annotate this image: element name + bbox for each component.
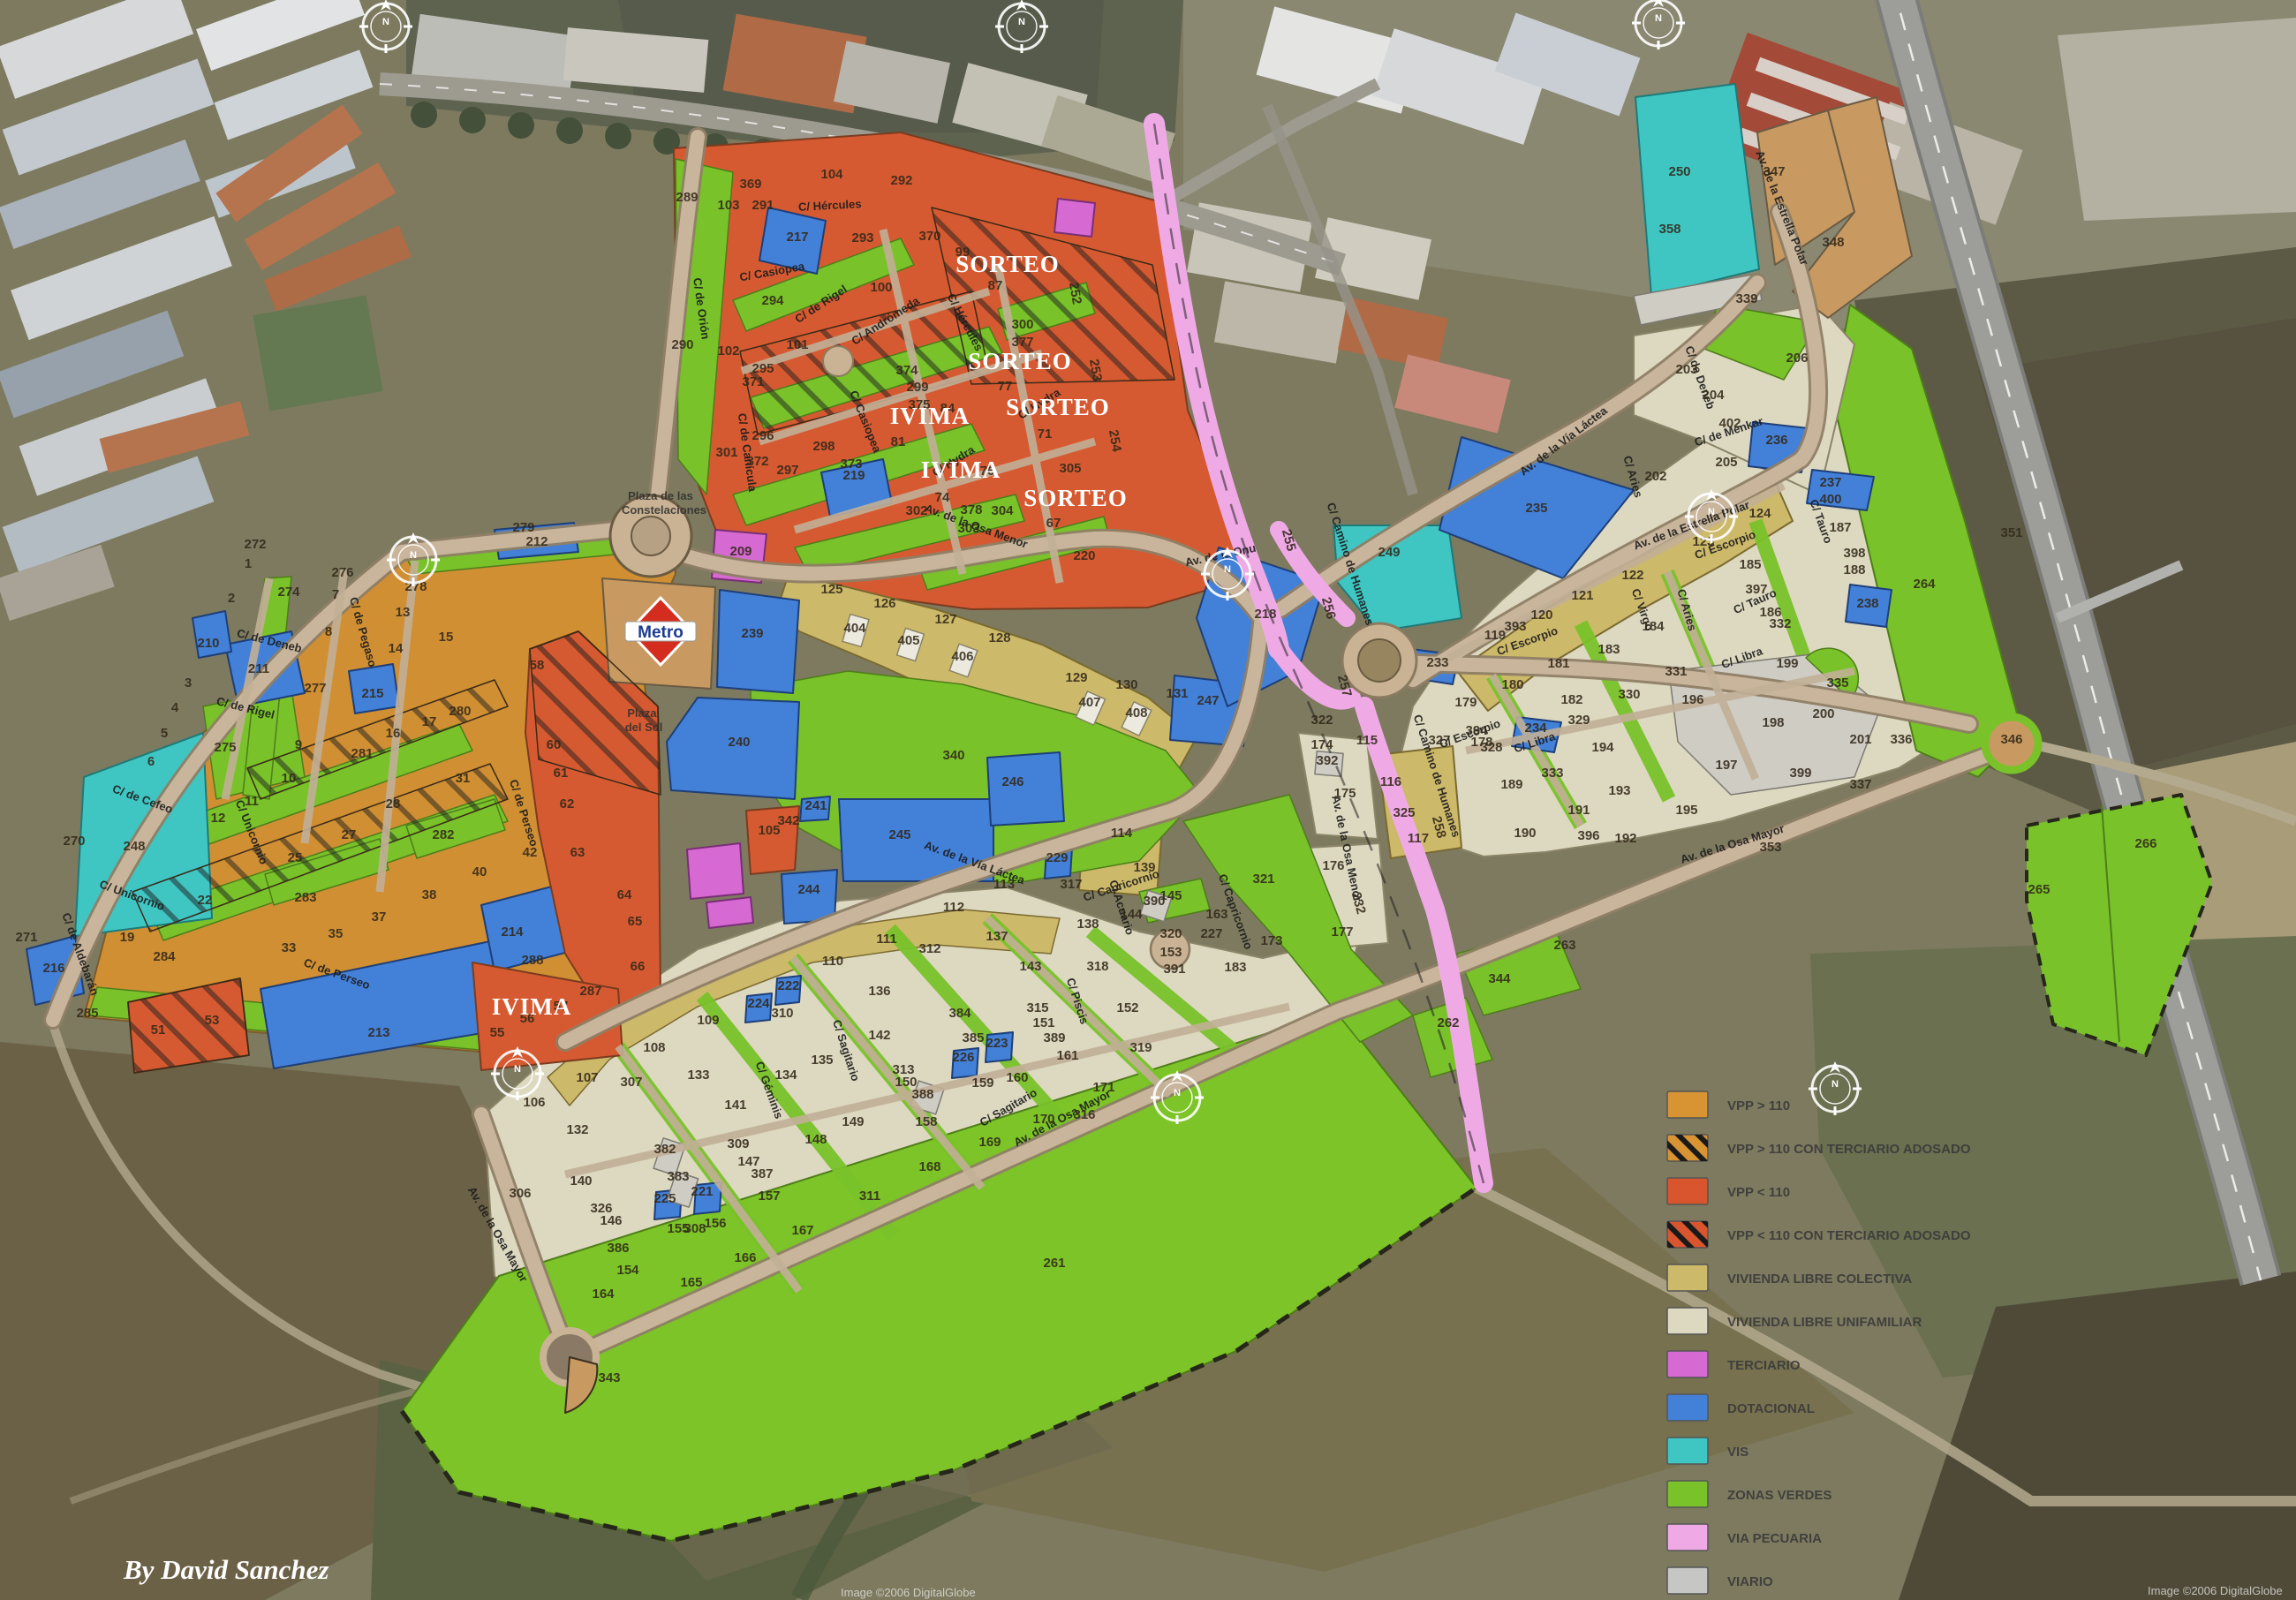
parcel-label: 66 xyxy=(631,959,646,974)
legend-swatch xyxy=(1667,1264,1708,1291)
parcel-label: 81 xyxy=(891,434,906,449)
parcel-label: 165 xyxy=(680,1275,702,1290)
parcel-label: 33 xyxy=(282,940,297,955)
parcel-label: 125 xyxy=(820,582,842,597)
parcel-label: 163 xyxy=(1205,907,1227,922)
parcel-label: 6 xyxy=(147,754,155,769)
parcel-label: 183 xyxy=(1224,960,1246,975)
parcel-label: 8 xyxy=(325,624,332,639)
parcel-label: 262 xyxy=(1437,1015,1459,1030)
parcel-label: 127 xyxy=(934,612,956,627)
parcel-label: 137 xyxy=(986,929,1008,944)
parcel-label: 226 xyxy=(952,1050,974,1065)
parcela-terciario-208 xyxy=(706,897,753,928)
tree-canopy xyxy=(459,107,486,133)
parcel-label: 329 xyxy=(1567,713,1590,728)
district-label: IVIMA xyxy=(921,457,1001,483)
parcel-label: 103 xyxy=(717,198,739,213)
parcel-label: 164 xyxy=(592,1287,615,1302)
parcel-label: 335 xyxy=(1826,675,1848,691)
district-label: IVIMA xyxy=(492,993,572,1020)
parcel-label: 135 xyxy=(811,1053,833,1068)
parcel-label: 275 xyxy=(214,740,236,755)
parcel-label: 102 xyxy=(717,343,739,358)
parcel-label: 239 xyxy=(741,626,763,641)
district-label: SORTEO xyxy=(968,348,1072,374)
parcel-label: 159 xyxy=(971,1075,993,1091)
parcel-label: 182 xyxy=(1560,692,1582,707)
parcel-label: 245 xyxy=(888,827,910,842)
parcel-label: 280 xyxy=(449,704,471,719)
parcel-label: 201 xyxy=(1849,732,1871,747)
parcel-label: 184 xyxy=(1642,619,1665,634)
legend-label: VPP < 110 CON TERCIARIO ADOSADO xyxy=(1727,1228,1971,1243)
parcel-label: 407 xyxy=(1078,695,1100,710)
parcel-label: 126 xyxy=(873,596,895,611)
parcel-label: 61 xyxy=(554,766,569,781)
parcel-label: 371 xyxy=(742,374,764,389)
parcel-label: 277 xyxy=(304,681,326,696)
legend-label: TERCIARIO xyxy=(1727,1358,1801,1373)
parcel-label: 331 xyxy=(1665,664,1687,679)
parcel-label: 106 xyxy=(523,1095,545,1110)
legend-swatch xyxy=(1667,1524,1708,1551)
legend-swatch xyxy=(1667,1567,1708,1594)
legend-label: VPP > 110 CON TERCIARIO ADOSADO xyxy=(1727,1142,1971,1157)
parcel-label: 142 xyxy=(868,1028,890,1043)
parcel-label: 235 xyxy=(1525,501,1547,516)
parcel-label: 308 xyxy=(684,1221,706,1236)
parcel-label: 310 xyxy=(771,1006,793,1021)
parcel-label: 191 xyxy=(1567,803,1590,818)
parcel-label: 387 xyxy=(751,1166,773,1181)
tree-canopy xyxy=(556,117,583,144)
plaza-label: del Sol xyxy=(625,721,663,734)
parcel-label: 173 xyxy=(1260,933,1282,948)
parcel-label: 144 xyxy=(1120,907,1143,922)
parcel-label: 244 xyxy=(797,882,820,897)
parcel-label: 288 xyxy=(521,953,543,968)
parcel-label: 343 xyxy=(598,1370,620,1385)
parcel-label: 348 xyxy=(1822,235,1844,250)
parcel-label: 404 xyxy=(843,621,866,636)
parcel-label: 193 xyxy=(1608,783,1630,798)
parcel-label: 104 xyxy=(820,167,843,182)
parcel-label: 266 xyxy=(2134,836,2156,851)
parcel-label: 12 xyxy=(211,811,226,826)
parcel-label: 171 xyxy=(1092,1080,1114,1095)
parcel-label: 77 xyxy=(998,379,1013,394)
parcel-label: 42 xyxy=(523,845,538,860)
parcel-label: 236 xyxy=(1765,433,1787,448)
parcel-label: 141 xyxy=(724,1098,746,1113)
parcel-label: 353 xyxy=(1759,840,1781,855)
parcel-label: 3 xyxy=(185,675,192,691)
parcel-label: 372 xyxy=(746,454,768,469)
parcel-label: 115 xyxy=(1356,733,1378,748)
parcel-label: 222 xyxy=(777,978,799,993)
parcel-label: 290 xyxy=(671,337,693,352)
parcel-label: 15 xyxy=(439,630,454,645)
parcel-label: 11 xyxy=(245,794,259,809)
parcel-label: 174 xyxy=(1310,737,1333,752)
parcel-label: 206 xyxy=(1786,351,1808,366)
parcel-label: 304 xyxy=(991,503,1014,518)
parcel-label: 405 xyxy=(897,633,919,648)
parcel-label: 298 xyxy=(812,439,835,454)
parcel-label: 112 xyxy=(943,900,964,915)
parcel-label: 130 xyxy=(1115,677,1137,692)
parcel-label: 64 xyxy=(617,887,632,902)
parcel-label: 265 xyxy=(2028,882,2050,897)
parcel-label: 391 xyxy=(1163,962,1185,977)
legend-swatch-hatch xyxy=(1667,1221,1708,1248)
parcel-label: 282 xyxy=(432,827,454,842)
parcel-label: 279 xyxy=(512,520,534,535)
parcel-label: 205 xyxy=(1715,455,1737,470)
parcel-label: 397 xyxy=(1745,582,1767,597)
legend-swatch-hatch xyxy=(1667,1135,1708,1161)
plaza-label: Plaza xyxy=(627,706,657,720)
parcel-label: 283 xyxy=(294,890,316,905)
parcel-label: 240 xyxy=(728,735,750,750)
parcel-label: 62 xyxy=(560,796,575,811)
parcel-label: 337 xyxy=(1849,777,1871,792)
parcel-label: 169 xyxy=(978,1135,1001,1150)
parcel-label: 129 xyxy=(1065,670,1087,685)
parcel-label: 87 xyxy=(988,278,1003,293)
parcel-label: 19 xyxy=(120,930,135,945)
parcel-label: 346 xyxy=(2000,732,2022,747)
parcel-label: 143 xyxy=(1019,959,1041,974)
parcel-label: 14 xyxy=(389,641,404,656)
district-label: SORTEO xyxy=(1023,485,1128,511)
parcel-label: 321 xyxy=(1252,872,1274,887)
parcel-label: 344 xyxy=(1488,971,1511,986)
parcel-label: 176 xyxy=(1322,858,1344,873)
parcel-label: 111 xyxy=(876,932,896,947)
parcel-label: 63 xyxy=(570,845,585,860)
parcel-label: 101 xyxy=(786,337,808,352)
parcel-label: 219 xyxy=(842,468,865,483)
parcel-label: 383 xyxy=(667,1169,689,1184)
district-label: SORTEO xyxy=(955,251,1060,277)
parcel-label: 17 xyxy=(422,714,437,729)
parcel-label: 167 xyxy=(791,1223,813,1238)
copyright-text-right: Image ©2006 DigitalGlobe xyxy=(2148,1584,2283,1597)
parcel-label: 221 xyxy=(691,1184,713,1199)
parcel-label: 369 xyxy=(739,177,761,192)
parcel-label: 203 xyxy=(1675,362,1697,377)
parcel-label: 5 xyxy=(161,726,168,741)
parcel-label: 238 xyxy=(1856,596,1878,611)
parcel-label: 152 xyxy=(1116,1000,1138,1015)
parcel-label: 392 xyxy=(1316,753,1338,768)
parcel-label: 124 xyxy=(1748,506,1771,521)
legend-label: VIA PECUARIA xyxy=(1727,1531,1822,1546)
map-canvas[interactable]: N xyxy=(0,0,2296,1600)
legend-swatch xyxy=(1667,1178,1708,1204)
parcel-label: 22 xyxy=(198,893,213,908)
parcel-label: 58 xyxy=(530,658,545,673)
parcel-label: 402 xyxy=(1718,416,1741,431)
parcel-label: 292 xyxy=(890,173,912,188)
legend-label: DOTACIONAL xyxy=(1727,1401,1815,1416)
parcel-label: 225 xyxy=(653,1191,676,1206)
parcel-label: 291 xyxy=(751,198,774,213)
parcel-label: 211 xyxy=(248,661,269,676)
district-label: IVIMA xyxy=(890,403,971,429)
parcel-label: 347 xyxy=(1763,164,1785,179)
parcel-label: 396 xyxy=(1577,828,1599,843)
parcel-label: 351 xyxy=(2000,525,2022,540)
parcel-label: 74 xyxy=(935,490,950,505)
parcel-label: 114 xyxy=(1111,826,1133,841)
parcel-label: 229 xyxy=(1046,850,1068,865)
parcel-label: 328 xyxy=(1480,740,1502,755)
parcel-label: 128 xyxy=(988,630,1010,645)
parcel-label: 60 xyxy=(547,737,562,752)
parcel-label: 121 xyxy=(1571,588,1593,603)
parcel-label: 306 xyxy=(509,1186,531,1201)
parcel-label: 27 xyxy=(342,827,357,842)
parcel-label: 179 xyxy=(1454,695,1477,710)
parcel-label: 223 xyxy=(986,1036,1008,1051)
parcel-label: 67 xyxy=(1046,516,1061,531)
parcel-label: 107 xyxy=(576,1070,598,1085)
parcel-label: 181 xyxy=(1547,656,1569,671)
parcel-label: 270 xyxy=(63,834,85,849)
tree-canopy xyxy=(411,102,437,128)
parcel-label: 190 xyxy=(1514,826,1536,841)
parcel-label: 272 xyxy=(244,537,266,552)
parcel-label: 140 xyxy=(570,1174,592,1189)
parcel-label: 319 xyxy=(1129,1040,1152,1055)
parcel-label: 37 xyxy=(372,909,387,925)
parcel-label: 53 xyxy=(205,1013,220,1028)
district-label: SORTEO xyxy=(1006,394,1110,420)
legend-label: VIS xyxy=(1727,1445,1748,1460)
parcel-label: 339 xyxy=(1735,291,1757,306)
parcel-label: 197 xyxy=(1715,758,1737,773)
parcel-label: 131 xyxy=(1166,686,1188,701)
parcel-label: 330 xyxy=(1618,687,1640,702)
parcel-label: 188 xyxy=(1843,562,1865,577)
parcel-label: 217 xyxy=(786,230,808,245)
parcel-label: 333 xyxy=(1541,766,1563,781)
parcel-label: 120 xyxy=(1530,608,1552,623)
parcel-label: 385 xyxy=(962,1030,984,1045)
parcel-label: 318 xyxy=(1086,959,1108,974)
legend-swatch xyxy=(1667,1394,1708,1421)
parcel-label: 9 xyxy=(295,737,302,752)
parcel-label: 195 xyxy=(1675,803,1697,818)
parcel-label: 136 xyxy=(868,984,890,999)
parcel-label: 301 xyxy=(715,445,737,460)
plaza-label: Plaza de las xyxy=(628,489,693,502)
parcel-label: 149 xyxy=(842,1114,864,1129)
parcel-label: 370 xyxy=(918,229,940,244)
parcel-label: 289 xyxy=(676,190,698,205)
parcel-label: 296 xyxy=(751,428,774,443)
tree-canopy xyxy=(508,112,534,139)
parcel-label: 4 xyxy=(171,700,179,715)
parcel-label: 65 xyxy=(628,914,643,929)
parcel-label: 276 xyxy=(331,565,353,580)
parcel-label: 382 xyxy=(653,1142,676,1157)
legend-swatch xyxy=(1667,1308,1708,1334)
parcel-label: 237 xyxy=(1819,475,1841,490)
parcel-label: 202 xyxy=(1644,469,1666,484)
parcel-label: 394 xyxy=(1465,723,1488,738)
parcel-label: 316 xyxy=(1073,1107,1095,1122)
parcel-label: 384 xyxy=(948,1006,971,1021)
tree-canopy xyxy=(605,123,631,149)
parcel-label: 218 xyxy=(1254,607,1276,622)
parcel-label: 13 xyxy=(396,605,411,620)
parcel-label: 132 xyxy=(566,1122,588,1137)
parcel-label: 139 xyxy=(1133,860,1155,875)
parcel-label: 250 xyxy=(1668,164,1690,179)
parcel-label: 374 xyxy=(895,363,918,378)
legend-label: VIVIENDA LIBRE COLECTIVA xyxy=(1727,1272,1912,1287)
parcel-label: 153 xyxy=(1159,945,1182,960)
parcel-label: 200 xyxy=(1812,706,1834,721)
parcel-label: 408 xyxy=(1125,706,1147,721)
parcel-label: 189 xyxy=(1500,777,1522,792)
parcel-label: 307 xyxy=(620,1075,642,1090)
parcel-label: 117 xyxy=(1408,831,1429,846)
parcel-label: 248 xyxy=(123,839,145,854)
parcel-label: 309 xyxy=(727,1136,749,1151)
legend-swatch xyxy=(1667,1481,1708,1507)
parcel-label: 168 xyxy=(918,1159,940,1174)
parcel-label: 180 xyxy=(1501,677,1523,692)
parcel-label: 113 xyxy=(993,877,1015,892)
parcel-label: 31 xyxy=(456,771,471,786)
parcel-label: 35 xyxy=(329,926,344,941)
parcel-label: 315 xyxy=(1026,1000,1048,1015)
parcel-label: 263 xyxy=(1553,938,1575,953)
parcel-label: 398 xyxy=(1843,546,1865,561)
parcel-label: 110 xyxy=(822,954,843,969)
parcel-label: 303 xyxy=(957,521,979,536)
parcel-label: 336 xyxy=(1890,732,1912,747)
parcel-label: 247 xyxy=(1197,693,1219,708)
parcel-label: 214 xyxy=(501,925,524,940)
parcel-label: 194 xyxy=(1591,740,1614,755)
parcel-label: 116 xyxy=(1380,774,1401,789)
metro-label: Metro xyxy=(638,623,684,642)
parcel-label: 177 xyxy=(1331,925,1353,940)
parcel-label: 227 xyxy=(1200,926,1222,941)
parcel-label: 1 xyxy=(245,556,252,571)
parcel-label: 105 xyxy=(758,823,780,838)
parcel-label: 185 xyxy=(1739,557,1761,572)
parcel-label: 122 xyxy=(1621,568,1643,583)
parcel-label: 161 xyxy=(1056,1048,1078,1063)
parcel-label: 71 xyxy=(1038,426,1053,442)
legend-swatch xyxy=(1667,1351,1708,1377)
parcel-label: 198 xyxy=(1762,715,1784,730)
parcel-label: 271 xyxy=(15,930,37,945)
satellite-building-block xyxy=(253,296,382,411)
parcel-label: 320 xyxy=(1159,926,1182,941)
parcel-label: 390 xyxy=(1143,894,1165,909)
parcel-label: 389 xyxy=(1043,1030,1065,1045)
parcel-label: 199 xyxy=(1776,656,1798,671)
parcel-label: 340 xyxy=(942,748,964,763)
parcel-label: 166 xyxy=(734,1250,756,1265)
parcel-label: 322 xyxy=(1310,713,1333,728)
parcel-label: 386 xyxy=(607,1241,629,1256)
parcel-label: 325 xyxy=(1393,805,1415,820)
parcel-label: 342 xyxy=(777,813,799,828)
parcel-label: 38 xyxy=(422,887,437,902)
parcel-label: 284 xyxy=(153,949,176,964)
legend-swatch xyxy=(1667,1091,1708,1118)
parcel-label: 215 xyxy=(361,686,383,701)
parcel-label: 388 xyxy=(911,1087,933,1102)
parcel-label: 264 xyxy=(1913,577,1936,592)
parcel-label: 133 xyxy=(687,1068,709,1083)
parcel-label: 25 xyxy=(288,850,303,865)
parcel-label: 294 xyxy=(761,293,784,308)
parcel-label: 285 xyxy=(76,1006,98,1021)
parcel-label: 204 xyxy=(1702,388,1725,403)
parcel-label: 241 xyxy=(804,798,827,813)
parcel-label: 209 xyxy=(729,544,751,559)
parcel-label: 170 xyxy=(1032,1112,1054,1127)
parcela-terciario-207 xyxy=(687,843,744,899)
parcel-label: 234 xyxy=(1524,721,1547,736)
parcel-label: 311 xyxy=(859,1189,880,1204)
parcel-label: 332 xyxy=(1769,616,1791,631)
parcel-label: 216 xyxy=(42,961,64,976)
parcel-label: 51 xyxy=(151,1023,166,1038)
parcel-label: 134 xyxy=(774,1068,797,1083)
parcel-label: 160 xyxy=(1006,1070,1028,1085)
parcel-label: 28 xyxy=(386,796,401,811)
parcel-label: 175 xyxy=(1333,786,1356,801)
parcel-label: 156 xyxy=(704,1216,726,1231)
parcel-label: 300 xyxy=(1011,317,1033,332)
parcel-label: 100 xyxy=(870,280,892,295)
parcel-label: 327 xyxy=(1428,733,1450,748)
parcel-label: 312 xyxy=(918,941,940,956)
plaza-label: Constelaciones xyxy=(622,503,706,517)
parcel-label: 40 xyxy=(472,864,487,879)
parcel-label: 224 xyxy=(747,996,770,1011)
parcel-label: 10 xyxy=(282,771,297,786)
legend-label: VPP > 110 xyxy=(1727,1098,1790,1113)
parcel-label: 213 xyxy=(367,1025,389,1040)
parcel-label: 246 xyxy=(1001,774,1023,789)
parcel-label: 297 xyxy=(776,463,798,478)
parcel-label: 187 xyxy=(1829,520,1851,535)
legend-label: ZONAS VERDES xyxy=(1727,1488,1832,1503)
parcel-label: 157 xyxy=(758,1189,780,1204)
parcel-label: 210 xyxy=(197,636,219,651)
parcel-label: 138 xyxy=(1076,917,1099,932)
parcel-label: 274 xyxy=(277,585,300,600)
parcel-label: 212 xyxy=(525,534,548,549)
parcel-label: 399 xyxy=(1789,766,1811,781)
legend-label: VIARIO xyxy=(1727,1574,1773,1589)
parcel-label: 249 xyxy=(1378,545,1400,560)
parcel-label: 16 xyxy=(386,726,401,741)
parcel-label: 196 xyxy=(1681,692,1703,707)
